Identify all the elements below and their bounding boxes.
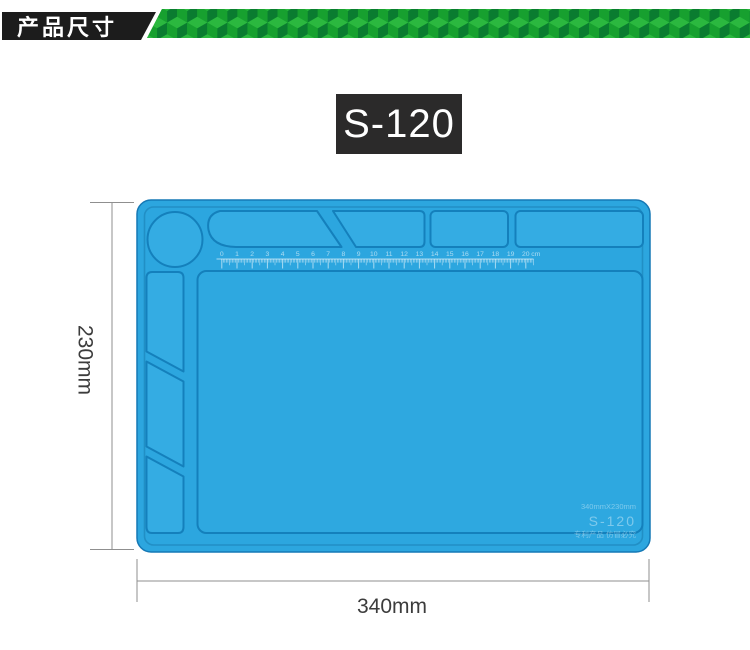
svg-text:16: 16 (461, 251, 469, 258)
mat-embossed-notice: 专利产品 仿冒必究 (574, 529, 637, 539)
width-dimension-label: 340mm (357, 595, 427, 618)
mat-top-tray-4 (516, 211, 644, 247)
svg-text:0: 0 (220, 251, 224, 258)
soldering-mat: 01234567891011121314151617181920cm 340mm… (137, 200, 650, 552)
product-illustration: 01234567891011121314151617181920cm 340mm… (0, 0, 750, 650)
svg-text:15: 15 (446, 251, 454, 258)
svg-text:8: 8 (342, 251, 346, 258)
svg-text:7: 7 (326, 251, 330, 258)
svg-text:9: 9 (357, 251, 361, 258)
svg-text:5: 5 (296, 251, 300, 258)
mat-embossed-size: 340mmX230mm (581, 502, 636, 511)
svg-text:1: 1 (235, 251, 239, 258)
mat-top-tray-3 (431, 211, 509, 247)
svg-text:4: 4 (281, 251, 285, 258)
svg-text:6: 6 (311, 251, 315, 258)
svg-text:3: 3 (266, 251, 270, 258)
height-dimension-label: 230mm (74, 325, 97, 395)
svg-text:12: 12 (400, 251, 408, 258)
mat-circle-tray (148, 212, 203, 267)
svg-text:11: 11 (385, 251, 392, 258)
svg-text:20: 20 (522, 251, 530, 258)
svg-text:10: 10 (370, 251, 378, 258)
mat-main-area (198, 271, 643, 533)
svg-text:13: 13 (416, 251, 424, 258)
svg-text:2: 2 (250, 251, 254, 258)
svg-text:19: 19 (507, 251, 515, 258)
mat-embossed-model: S-120 (589, 513, 636, 529)
svg-text:18: 18 (492, 251, 500, 258)
header-title-label: 产品尺寸 (2, 12, 156, 40)
mat-top-tray-1 (208, 211, 341, 247)
svg-text:14: 14 (431, 251, 439, 258)
header-title: 产品尺寸 (17, 10, 117, 42)
svg-text:17: 17 (476, 251, 484, 258)
svg-text:cm: cm (531, 251, 540, 258)
